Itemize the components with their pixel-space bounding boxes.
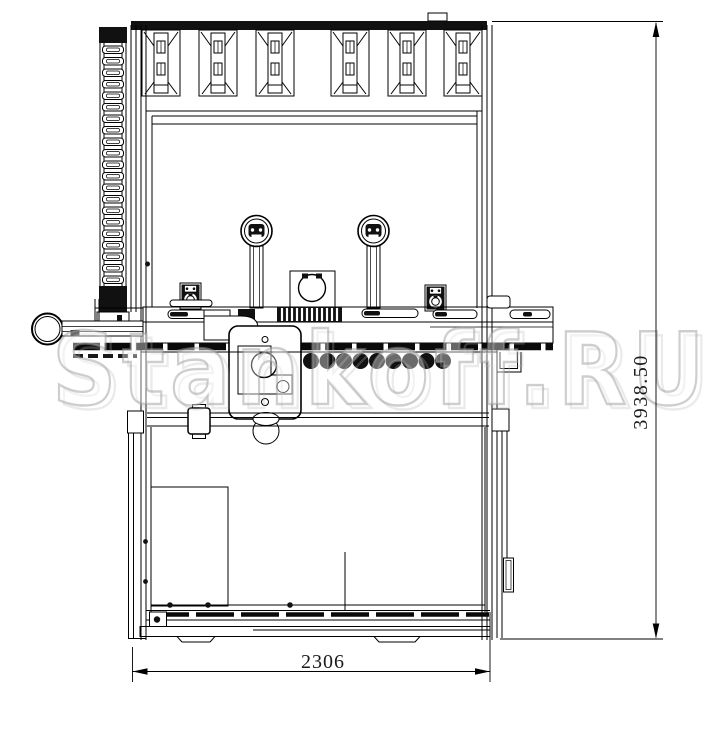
screenshot-root: Stankoff.RU Stankoff.RU 3938.50 2306	[0, 0, 717, 742]
tool-modules	[142, 30, 482, 96]
watermark: Stankoff.RU Stankoff.RU	[52, 311, 715, 432]
machine-top-bar	[131, 13, 487, 30]
arrow-right-icon	[475, 668, 490, 675]
machine-drawing-svg: Stankoff.RU Stankoff.RU 3938.50 2306	[0, 0, 717, 742]
watermark-text: Stankoff.RU	[52, 311, 710, 428]
width-dimension-label: 2306	[301, 651, 345, 673]
dimension-width: 2306	[133, 612, 491, 682]
bearing-block	[290, 271, 335, 311]
arrow-down-icon	[653, 624, 660, 639]
height-dimension-label: 3938.50	[630, 354, 652, 430]
arrow-up-icon	[653, 22, 660, 37]
cable-chain	[97, 27, 129, 334]
arrow-left-icon	[133, 668, 148, 675]
